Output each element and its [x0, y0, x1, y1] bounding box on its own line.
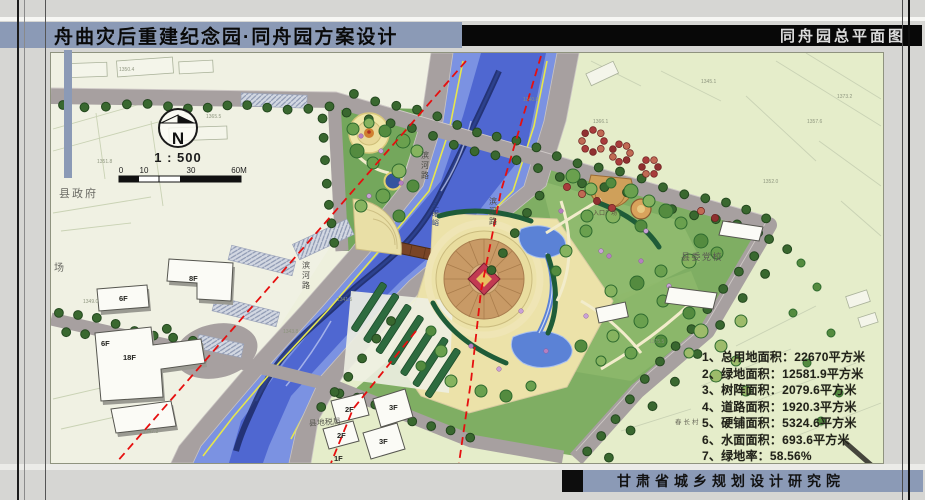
- flower-icon: [644, 229, 649, 234]
- street-tree-icon: [283, 105, 292, 114]
- street-tree-icon: [555, 173, 564, 182]
- label-bldg-2f-a: 2F: [345, 405, 354, 414]
- park-tree-icon: [675, 217, 687, 229]
- frame-line-right-1: [902, 0, 903, 500]
- street-tree-icon: [143, 100, 152, 109]
- red-tree-icon: [590, 127, 597, 134]
- park-tree-icon: [560, 245, 572, 257]
- street-tree-icon: [429, 132, 438, 141]
- park-tree-icon: [551, 266, 561, 276]
- scale-tick-60: 60M: [231, 166, 247, 175]
- street-tree-icon: [321, 156, 330, 165]
- label-bldg-1f: 1F: [334, 454, 343, 463]
- street-tree-icon: [499, 249, 508, 258]
- park-tree-icon: [625, 347, 637, 359]
- label-bldg-3f-a: 3F: [389, 403, 398, 412]
- street-tree-icon: [491, 151, 500, 160]
- park-tree-icon: [376, 189, 390, 203]
- plan-name: 同舟园总平面图: [780, 25, 906, 46]
- red-tree-icon: [578, 190, 585, 197]
- street-tree-icon: [342, 108, 351, 117]
- street-tree-icon: [762, 214, 771, 223]
- park-tree-icon: [392, 164, 406, 178]
- street-tree-icon: [492, 132, 501, 141]
- label-entrance-plaza: 入口广场: [593, 209, 617, 217]
- red-tree-icon: [697, 207, 704, 214]
- red-tree-icon: [651, 157, 658, 164]
- flower-icon: [544, 349, 549, 354]
- elevation-label: 1349.0: [83, 299, 99, 305]
- street-tree-icon: [487, 266, 496, 275]
- red-tree-icon: [610, 146, 617, 153]
- street-tree-icon: [701, 194, 710, 203]
- street-tree-icon: [765, 235, 774, 244]
- stat-line-1: 1、总用地面积：22670平方米: [702, 349, 917, 366]
- elevation-label: 1375.5: [649, 339, 665, 345]
- street-tree-icon: [742, 205, 751, 214]
- park-tree-icon: [694, 234, 708, 248]
- red-tree-icon: [597, 145, 604, 152]
- street-tree-icon: [325, 102, 334, 111]
- red-tree-icon: [643, 157, 650, 164]
- red-tree-icon: [593, 197, 600, 204]
- label-bldg-6f-a: 6F: [119, 294, 128, 303]
- stat-line-3: 3、树阵面积：2079.6平方米: [702, 382, 917, 399]
- institute-name: 甘肃省城乡规划设计研究院: [617, 471, 845, 491]
- street-tree-icon: [92, 314, 101, 323]
- flower-icon: [599, 249, 604, 254]
- park-tree-icon: [813, 283, 821, 291]
- street-tree-icon: [626, 426, 635, 435]
- park-tree-icon: [634, 314, 648, 328]
- red-tree-icon: [627, 150, 634, 157]
- label-bldg-2f-b: 2F: [337, 431, 346, 440]
- park-tree-icon: [475, 385, 487, 397]
- red-tree-icon: [655, 164, 662, 171]
- park-tree-icon: [350, 144, 364, 158]
- street-tree-icon: [102, 102, 111, 111]
- red-tree-icon: [616, 141, 623, 148]
- park-tree-icon: [630, 276, 644, 290]
- park-tree-icon: [379, 125, 391, 137]
- park-tree-icon: [684, 348, 694, 358]
- plan-name-bar: 同舟园总平面图: [452, 25, 922, 46]
- street-tree-icon: [74, 311, 83, 320]
- elevation-label: 1340.8: [523, 97, 539, 103]
- park-tree-icon: [581, 210, 593, 222]
- red-tree-icon: [579, 138, 586, 145]
- park-tree-icon: [575, 340, 587, 352]
- stat-line-2: 2、绿地面积：12581.9平方米: [702, 366, 917, 383]
- park-tree-icon: [426, 326, 436, 336]
- red-tree-icon: [643, 171, 650, 178]
- red-tree-icon: [590, 149, 597, 156]
- street-tree-icon: [512, 156, 521, 165]
- street-tree-icon: [735, 267, 744, 276]
- central-memorial-plaza: [436, 231, 532, 327]
- street-tree-icon: [722, 198, 731, 207]
- street-tree-icon: [466, 433, 475, 442]
- street-tree-icon: [449, 140, 458, 149]
- street-tree-icon: [350, 90, 359, 99]
- street-tree-icon: [534, 164, 543, 173]
- elevation-label: 1341.5: [337, 297, 353, 303]
- elevation-label: 1345.1: [701, 79, 717, 85]
- street-tree-icon: [80, 103, 89, 112]
- street-tree-icon: [473, 128, 482, 137]
- park-tree-icon: [605, 285, 617, 297]
- park-tree-icon: [396, 134, 410, 148]
- street-tree-icon: [319, 133, 328, 142]
- flower-icon: [469, 344, 474, 349]
- red-tree-icon: [597, 130, 604, 137]
- park-tree-icon: [580, 225, 592, 237]
- flower-icon: [519, 309, 524, 314]
- park-tree-icon: [407, 180, 419, 192]
- street-tree-icon: [162, 324, 171, 333]
- park-tree-icon: [585, 183, 597, 195]
- street-tree-icon: [761, 270, 770, 279]
- park-tree-icon: [624, 184, 638, 198]
- stat-line-5: 5、硬铺面积：5324.6平方米: [702, 415, 917, 432]
- stat-line-6: 6、水面面积：693.6平方米: [702, 432, 917, 449]
- street-tree-icon: [605, 453, 614, 462]
- footer-bar: 甘肃省城乡规划设计研究院: [583, 470, 923, 492]
- scale-text: 1 : 500: [154, 150, 201, 165]
- flower-icon: [584, 314, 589, 319]
- flower-icon: [639, 259, 644, 264]
- street-tree-icon: [322, 179, 331, 188]
- park-tree-icon: [694, 324, 708, 338]
- street-tree-icon: [594, 163, 603, 172]
- street-tree-icon: [552, 152, 561, 161]
- street-tree-icon: [750, 252, 759, 261]
- park-tree-icon: [596, 356, 606, 366]
- red-tree-icon: [601, 138, 608, 145]
- street-tree-icon: [716, 321, 725, 330]
- flower-icon: [367, 194, 372, 199]
- frame-line-left-3: [45, 0, 46, 500]
- park-tree-icon: [416, 361, 426, 371]
- street-tree-icon: [671, 342, 680, 351]
- street-tree-icon: [535, 191, 544, 200]
- street-tree-icon: [81, 330, 90, 339]
- scale-tick-10: 10: [140, 166, 149, 175]
- flower-icon: [399, 181, 404, 186]
- street-tree-icon: [203, 103, 212, 112]
- elevation-label: 1373.2: [837, 94, 853, 100]
- area-statistics: 1、总用地面积：22670平方米 2、绿地面积：12581.9平方米 3、树阵面…: [702, 349, 917, 465]
- street-tree-icon: [470, 147, 479, 156]
- stat-line-7: 7、绿地率：58.56%: [702, 448, 917, 465]
- street-tree-icon: [783, 245, 792, 254]
- street-tree-icon: [330, 238, 339, 247]
- elevation-label: 1347.2: [143, 429, 159, 435]
- red-tree-icon: [711, 214, 718, 221]
- flower-icon: [607, 254, 612, 259]
- park-tree-icon: [393, 210, 405, 222]
- park-tree-icon: [606, 178, 616, 188]
- street-tree-icon: [453, 121, 462, 130]
- red-tree-icon: [623, 143, 630, 150]
- street-tree-icon: [358, 354, 367, 363]
- label-party-school: 县委党校: [681, 251, 723, 262]
- north-compass-icon: N: [159, 109, 197, 148]
- street-tree-icon: [304, 104, 313, 113]
- stat-line-4: 4、道路面积：1920.3平方米: [702, 399, 917, 416]
- park-tree-icon: [364, 118, 374, 128]
- street-tree-icon: [659, 183, 668, 192]
- park-tree-icon: [500, 390, 512, 402]
- street-tree-icon: [243, 101, 252, 110]
- street-tree-icon: [719, 285, 728, 294]
- street-tree-icon: [263, 103, 272, 112]
- page-title: 舟曲灾后重建纪念园·同舟园方案设计: [54, 22, 398, 49]
- park-tree-icon: [355, 200, 367, 212]
- flower-icon: [559, 209, 564, 214]
- street-tree-icon: [317, 403, 326, 412]
- street-tree-icon: [446, 426, 455, 435]
- street-tree-icon: [427, 422, 436, 431]
- park-tree-icon: [435, 345, 447, 357]
- red-tree-icon: [582, 145, 589, 152]
- street-tree-icon: [671, 377, 680, 386]
- street-tree-icon: [408, 124, 417, 133]
- park-tree-icon: [655, 265, 667, 277]
- top-divider: [0, 17, 925, 21]
- park-tree-icon: [566, 169, 580, 183]
- label-bldg-6f-b: 6F: [101, 339, 110, 348]
- street-tree-icon: [611, 415, 620, 424]
- street-tree-icon: [392, 101, 401, 110]
- street-tree-icon: [616, 167, 625, 176]
- red-tree-icon: [563, 183, 570, 190]
- frame-line-left-2: [24, 0, 25, 500]
- street-tree-icon: [693, 350, 702, 359]
- street-tree-icon: [344, 372, 353, 381]
- label-river-name: 三眼峪: [432, 201, 440, 228]
- street-tree-icon: [62, 328, 71, 337]
- elevation-label: 1352.0: [763, 179, 779, 185]
- park-tree-icon: [526, 381, 536, 391]
- street-tree-icon: [371, 97, 380, 106]
- park-tree-icon: [659, 204, 673, 218]
- red-tree-icon: [639, 164, 646, 171]
- label-square: 场: [54, 261, 64, 274]
- street-tree-icon: [656, 357, 665, 366]
- street-tree-icon: [372, 334, 381, 343]
- red-tree-icon: [610, 154, 617, 161]
- street-tree-icon: [690, 211, 699, 220]
- red-tree-icon: [623, 157, 630, 164]
- street-tree-icon: [626, 395, 635, 404]
- flower-icon: [359, 134, 364, 139]
- left-accent-bar: [64, 50, 72, 178]
- park-tree-icon: [643, 195, 655, 207]
- street-tree-icon: [583, 447, 592, 456]
- street-tree-icon: [318, 114, 327, 123]
- park-tree-icon: [789, 309, 797, 317]
- scale-tick-30: 30: [187, 166, 196, 175]
- street-tree-icon: [640, 375, 649, 384]
- scale-tick-0: 0: [119, 166, 124, 175]
- park-tree-icon: [607, 330, 619, 342]
- street-tree-icon: [597, 432, 606, 441]
- title-bar: 舟曲灾后重建纪念园·同舟园方案设计: [0, 22, 462, 48]
- red-tree-icon: [651, 171, 658, 178]
- frame-line-left-1: [17, 0, 19, 500]
- compass-n: N: [172, 129, 184, 148]
- label-county-government: 县政府: [59, 186, 98, 200]
- street-tree-icon: [680, 190, 689, 199]
- street-tree-icon: [169, 333, 178, 342]
- elevation-label: 1357.6: [807, 119, 823, 125]
- street-tree-icon: [55, 309, 64, 318]
- park-tree-icon: [347, 123, 359, 135]
- street-tree-icon: [330, 388, 339, 397]
- street-tree-icon: [738, 294, 747, 303]
- street-tree-icon: [387, 317, 396, 326]
- park-tree-icon: [683, 307, 695, 319]
- street-tree-icon: [532, 143, 541, 152]
- street-tree-icon: [523, 209, 532, 218]
- label-riverside-road-2: 滨河路: [302, 260, 311, 291]
- street-tree-icon: [325, 200, 334, 209]
- street-tree-icon: [573, 159, 582, 168]
- street-tree-icon: [123, 100, 132, 109]
- park-tree-icon: [827, 329, 835, 337]
- label-riverside-road-3: 滨河路: [489, 196, 498, 227]
- footer-black-square: [562, 470, 583, 492]
- park-tree-icon: [735, 315, 747, 327]
- frame-line-right-2: [908, 0, 910, 500]
- red-tree-icon: [616, 158, 623, 165]
- elevation-label: 1343.8: [283, 329, 299, 335]
- street-tree-icon: [433, 112, 442, 121]
- label-bldg-3f-b: 3F: [379, 437, 388, 446]
- flower-icon: [379, 149, 384, 154]
- label-bldg-18f: 18F: [123, 353, 136, 362]
- street-tree-icon: [111, 320, 120, 329]
- elevation-label: 1351.8: [97, 159, 113, 165]
- street-tree-icon: [648, 402, 657, 411]
- park-tree-icon: [797, 259, 805, 267]
- flower-icon: [497, 367, 502, 372]
- street-tree-icon: [223, 101, 232, 110]
- label-bldg-8f: 8F: [189, 274, 198, 283]
- label-village: 春长村: [675, 417, 701, 426]
- elevation-label: 1366.1: [593, 119, 609, 125]
- street-tree-icon: [510, 229, 519, 238]
- label-riverside-road-1: 滨河路: [421, 150, 430, 181]
- park-tree-icon: [445, 375, 457, 387]
- elevation-label: 1350.4: [119, 67, 135, 73]
- elevation-label: 1365.5: [206, 114, 222, 120]
- red-tree-icon: [582, 130, 589, 137]
